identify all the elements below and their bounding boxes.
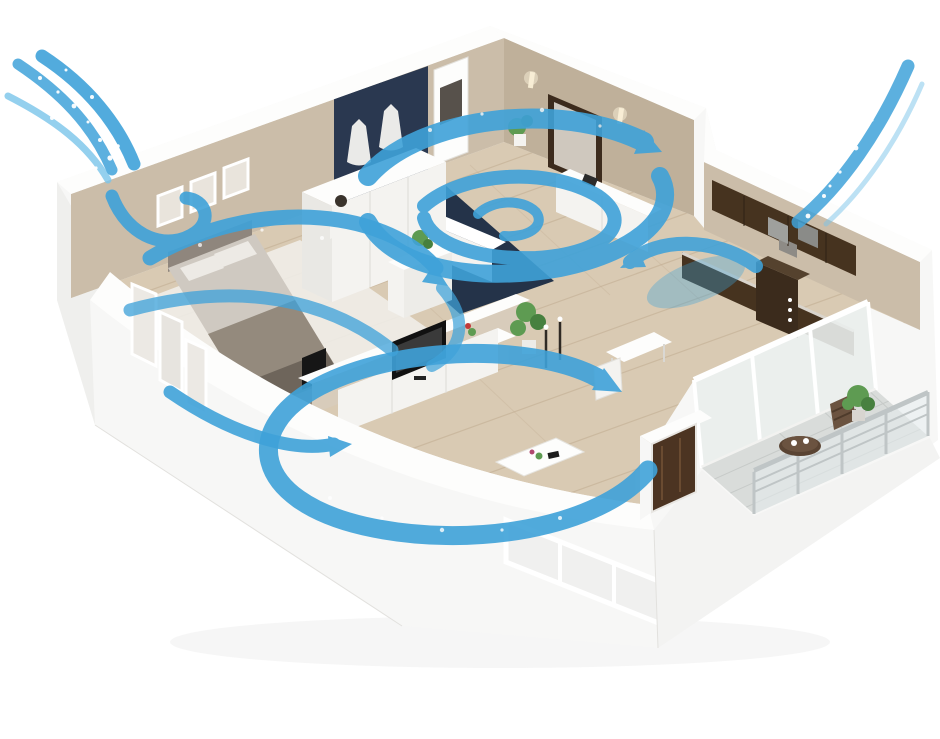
intake-stream-right <box>798 66 922 224</box>
bathroom-door <box>434 57 468 165</box>
nightstand-lamp <box>335 195 347 207</box>
cup-1 <box>791 440 797 446</box>
floorplan-svg <box>0 0 940 739</box>
floorplan-illustration <box>0 0 940 739</box>
hallway-plant-pot <box>514 134 526 146</box>
coffee-table-flower <box>530 450 535 455</box>
cup-2 <box>803 438 809 444</box>
console-flower <box>465 323 471 329</box>
balcony-table <box>779 436 821 456</box>
